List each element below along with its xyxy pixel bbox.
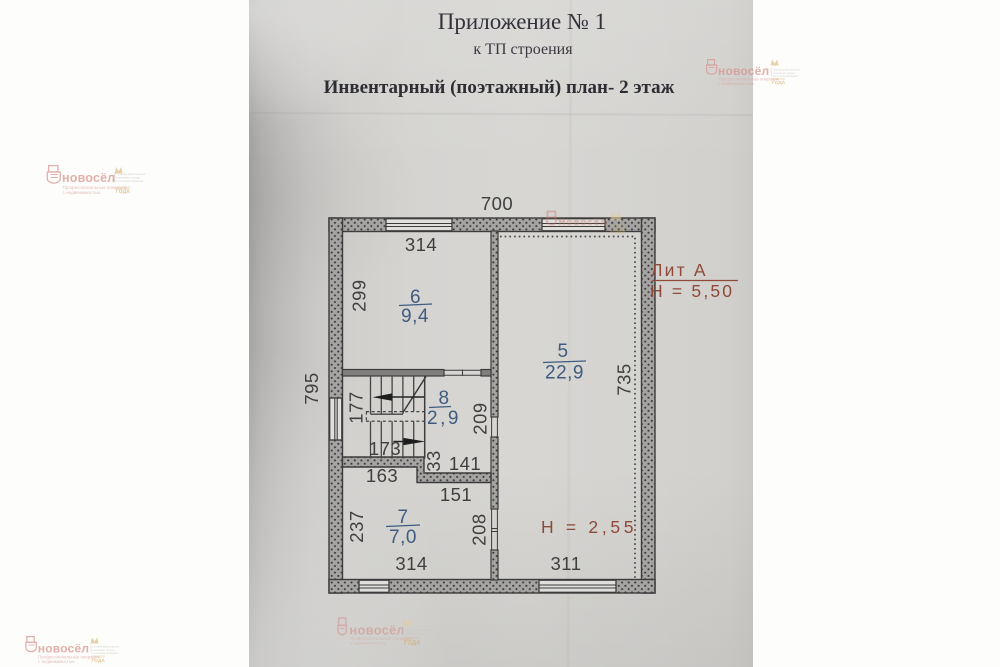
svg-text:ГОДА: ГОДА <box>404 641 421 647</box>
svg-text:299: 299 <box>349 279 370 311</box>
svg-text:22,9: 22,9 <box>545 363 584 384</box>
svg-text:173: 173 <box>369 438 401 459</box>
svg-text:209: 209 <box>470 402 491 434</box>
svg-text:33: 33 <box>423 450 444 472</box>
svg-text:314: 314 <box>395 553 427 574</box>
svg-text:Приложение № 1: Приложение № 1 <box>438 9 606 34</box>
svg-text:с недвижимостью: с недвижимостью <box>38 659 75 664</box>
svg-text:ГОДА: ГОДА <box>92 658 106 664</box>
svg-text:новосёл: новосёл <box>38 642 89 656</box>
svg-text:314: 314 <box>405 234 437 255</box>
svg-text:8: 8 <box>438 388 449 409</box>
svg-text:237: 237 <box>346 510 367 542</box>
svg-text:ГОДА: ГОДА <box>116 189 130 195</box>
svg-text:Новосёл: Новосёл <box>559 217 608 228</box>
svg-text:новосёл: новосёл <box>62 171 115 185</box>
svg-text:Лит А: Лит А <box>651 260 708 280</box>
svg-text:Инвентарный (поэтажный) план-: Инвентарный (поэтажный) план- 2 этаж <box>324 77 675 98</box>
svg-text:163: 163 <box>366 465 398 486</box>
svg-text:9,4: 9,4 <box>401 306 429 327</box>
svg-text:208: 208 <box>469 513 490 545</box>
svg-text:151: 151 <box>440 484 472 505</box>
svg-text:795: 795 <box>301 372 322 404</box>
svg-text:7,0: 7,0 <box>389 527 417 548</box>
svg-text:с недвижимостью: с недвижимостью <box>63 190 101 195</box>
svg-text:к ТП строения: к ТП строения <box>473 41 573 58</box>
svg-text:7: 7 <box>397 507 408 528</box>
svg-text:ГОДА: ГОДА <box>772 80 786 86</box>
svg-text:ГОДА: ГОДА <box>611 229 626 235</box>
svg-text:735: 735 <box>614 363 635 395</box>
svg-text:Н = 5,50: Н = 5,50 <box>650 281 734 301</box>
svg-text:5: 5 <box>557 341 568 362</box>
svg-text:с недвижимостью: с недвижимостью <box>719 81 755 86</box>
svg-text:2,9: 2,9 <box>427 408 461 429</box>
svg-text:700: 700 <box>481 193 513 214</box>
svg-text:с недвижимостью: с недвижимостью <box>350 641 387 646</box>
svg-text:риэлтор: риэлтор <box>92 655 105 659</box>
svg-text:риэлтор: риэлтор <box>611 224 625 228</box>
svg-text:311: 311 <box>551 553 582 574</box>
svg-text:риэлтор: риэлтор <box>404 635 420 640</box>
svg-text:177: 177 <box>346 391 367 423</box>
svg-text:Н = 2,55: Н = 2,55 <box>541 517 637 537</box>
svg-text:по итогам конкурса: по итогам конкурса <box>117 179 144 183</box>
svg-text:141: 141 <box>449 453 481 474</box>
